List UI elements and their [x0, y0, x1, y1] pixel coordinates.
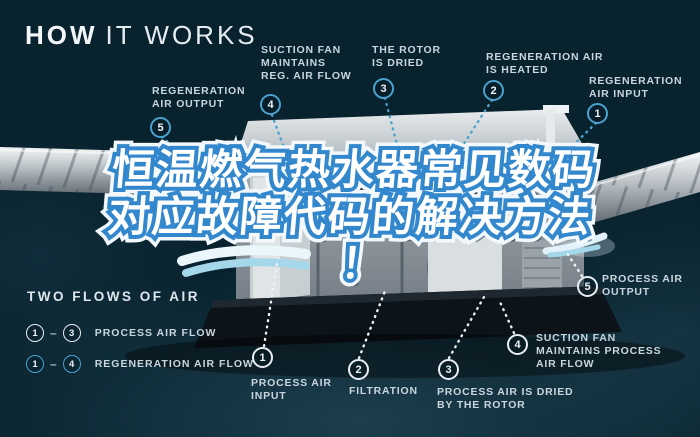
- headline-exclamation: ！: [11, 240, 700, 287]
- headline-line2: 对应故障代码的解决方法: [0, 193, 700, 240]
- label-suction-fan-process-air-flow: SUCTION FAN MAINTAINS PROCESS AIR FLOW: [536, 332, 661, 371]
- legend-regen-to: 4: [63, 355, 81, 373]
- page-title: HOWIT WORKS: [25, 20, 258, 51]
- infographic-canvas: HOWIT WORKS REGENERATION AIR OUTPUT SUCT…: [0, 0, 700, 437]
- marker-regen-3: 3: [373, 78, 394, 99]
- marker-process-2: 2: [348, 359, 369, 380]
- legend-dash: –: [50, 357, 57, 371]
- marker-process-1: 1: [252, 347, 273, 368]
- title-it-works: IT WORKS: [106, 20, 258, 50]
- label-regeneration-air-output: REGENERATION AIR OUTPUT: [152, 85, 245, 111]
- title-how: HOW: [25, 20, 98, 50]
- label-rotor-is-dried: THE ROTOR IS DRIED: [372, 44, 441, 70]
- legend-process-label: PROCESS AIR FLOW: [95, 327, 217, 339]
- legend-row-process: 1 – 3 PROCESS AIR FLOW: [26, 324, 216, 342]
- legend-title: TWO FLOWS OF AIR: [27, 289, 200, 304]
- headline-line1: 恒温燃气热水器常见数码: [2, 146, 700, 193]
- label-process-air-input: PROCESS AIR INPUT: [251, 377, 332, 403]
- marker-process-4: 4: [507, 334, 528, 355]
- headline-overlay: 恒温燃气热水器常见数码 对应故障代码的解决方法 ！: [0, 146, 700, 287]
- legend-regen-label: REGENERATION AIR FLOW: [95, 358, 254, 370]
- label-suction-fan-reg-air-flow: SUCTION FAN MAINTAINS REG. AIR FLOW: [261, 44, 352, 83]
- legend-row-regeneration: 1 – 4 REGENERATION AIR FLOW: [26, 355, 254, 373]
- legend-regen-from: 1: [26, 355, 44, 373]
- legend-dash: –: [50, 326, 57, 340]
- marker-regen-4: 4: [260, 94, 281, 115]
- legend-process-to: 3: [63, 324, 81, 342]
- marker-process-3: 3: [438, 359, 459, 380]
- regen-input-pipe-drop: [546, 110, 555, 150]
- marker-regen-2: 2: [483, 80, 504, 101]
- marker-regen-5: 5: [150, 117, 171, 138]
- label-filtration: FILTRATION: [349, 385, 418, 398]
- legend-process-from: 1: [26, 324, 44, 342]
- label-regeneration-air-heated: REGENERATION AIR IS HEATED: [486, 51, 603, 77]
- label-process-air-dried: PROCESS AIR IS DRIED BY THE ROTOR: [437, 386, 573, 412]
- label-regeneration-air-input: REGENERATION AIR INPUT: [589, 75, 682, 101]
- marker-regen-1: 1: [587, 103, 608, 124]
